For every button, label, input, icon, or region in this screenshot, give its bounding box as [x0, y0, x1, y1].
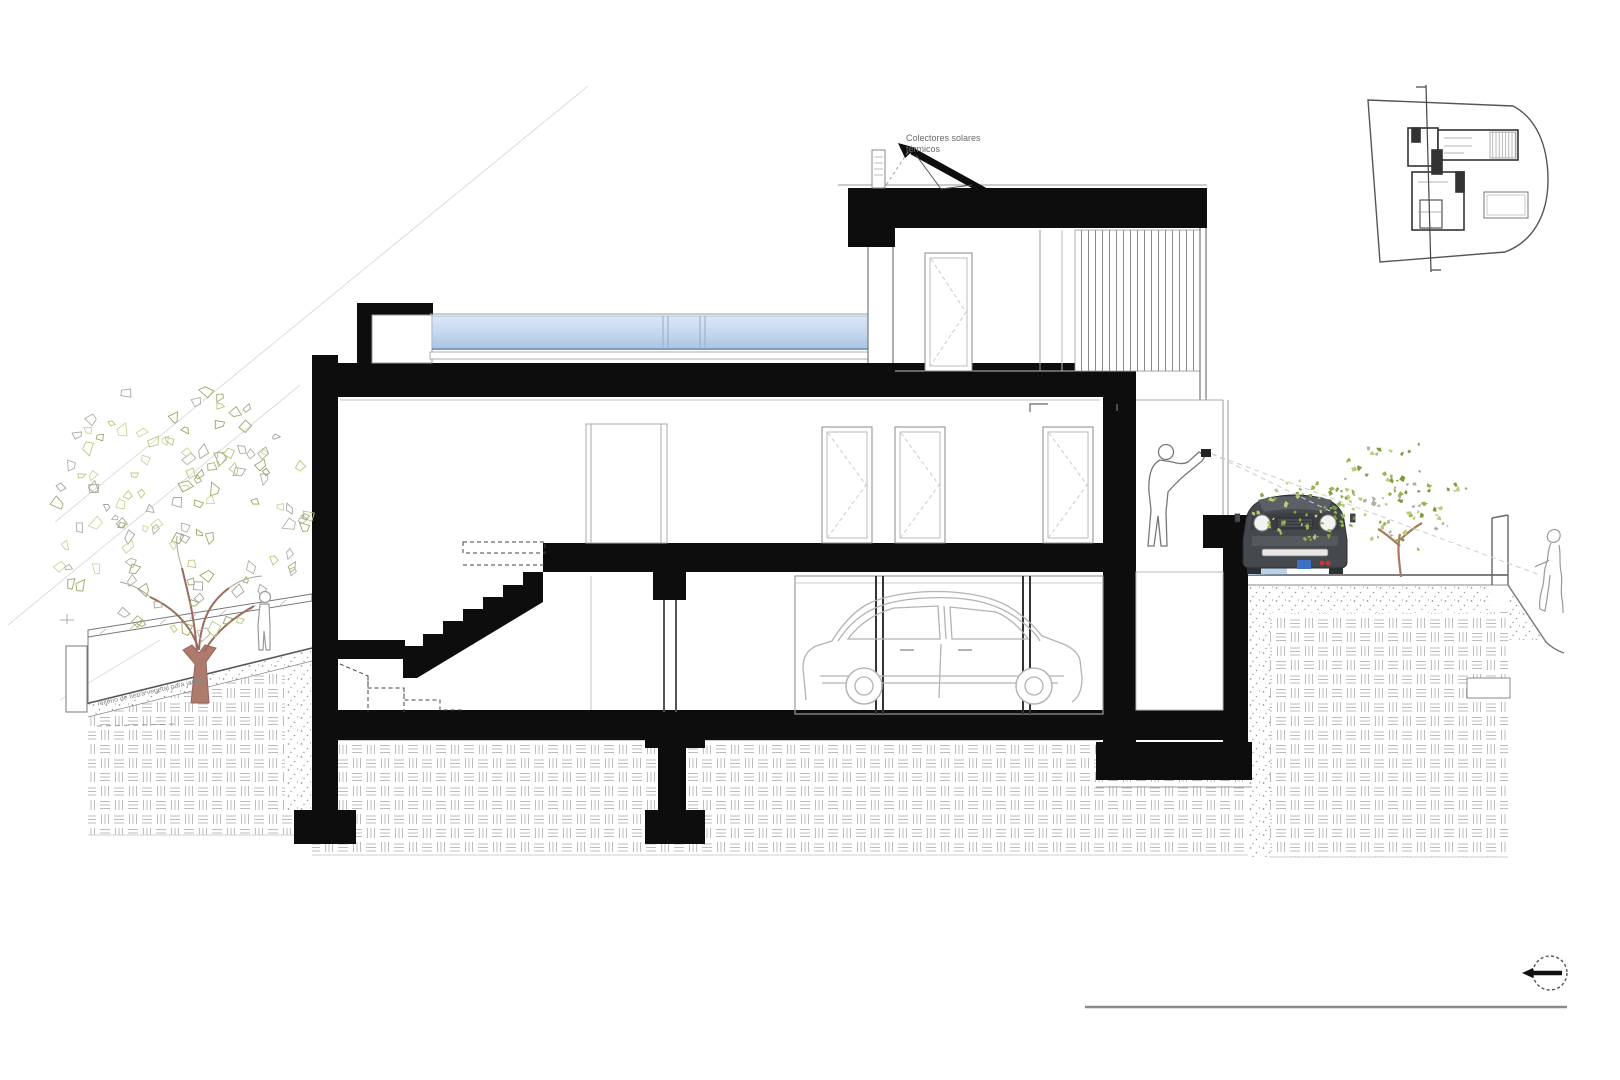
left-tree [50, 387, 314, 703]
right-footing [1096, 742, 1252, 780]
interior-door-3 [1043, 427, 1093, 543]
ground-right-terrace [1248, 575, 1564, 857]
section-drawing: Colectores solares térmicos [0, 0, 1620, 1080]
lower-roof-slab [312, 363, 1136, 397]
solar-note-line2: térmicos [906, 144, 941, 154]
interior-door-1 [822, 427, 872, 543]
garage-beam [653, 543, 686, 600]
garage-glazing-mullions [876, 576, 1030, 714]
entry-landing [330, 640, 405, 659]
interior-opening [586, 424, 667, 543]
handheld-device [1201, 449, 1211, 457]
person-garden-left [258, 592, 271, 651]
left-footing [294, 810, 356, 844]
stair-flight [403, 572, 543, 678]
garage-car [803, 592, 1082, 704]
architectural-section-sheet: Colectores solares térmicos [0, 0, 1620, 1080]
mid-footing [645, 810, 705, 844]
right-garage-wall [1103, 363, 1136, 743]
person-interior [1148, 445, 1211, 547]
interior-door-2 [895, 427, 945, 543]
stair-hidden-lines [340, 542, 545, 712]
skylight-band [372, 314, 868, 363]
site-plan-pool [1484, 192, 1528, 218]
license-plate [1297, 560, 1311, 569]
person-slope-right [1535, 529, 1563, 613]
garage-glazing-frame [795, 576, 1103, 714]
penthouse-door [925, 253, 972, 371]
right-store-room [1136, 572, 1223, 710]
site-plan-key [1368, 85, 1548, 272]
penthouse-roof-slab [848, 188, 1207, 228]
first-floor-interior [340, 400, 1100, 543]
section-marker [1522, 956, 1567, 990]
timber-slat-screen [1075, 230, 1200, 371]
solar-note-line1: Colectores solares [906, 133, 981, 143]
ceiling-bracket-mark [1030, 404, 1048, 412]
right-tree [1329, 443, 1468, 577]
mid-floor-slab [543, 543, 1108, 572]
driveway-car [1235, 495, 1355, 574]
